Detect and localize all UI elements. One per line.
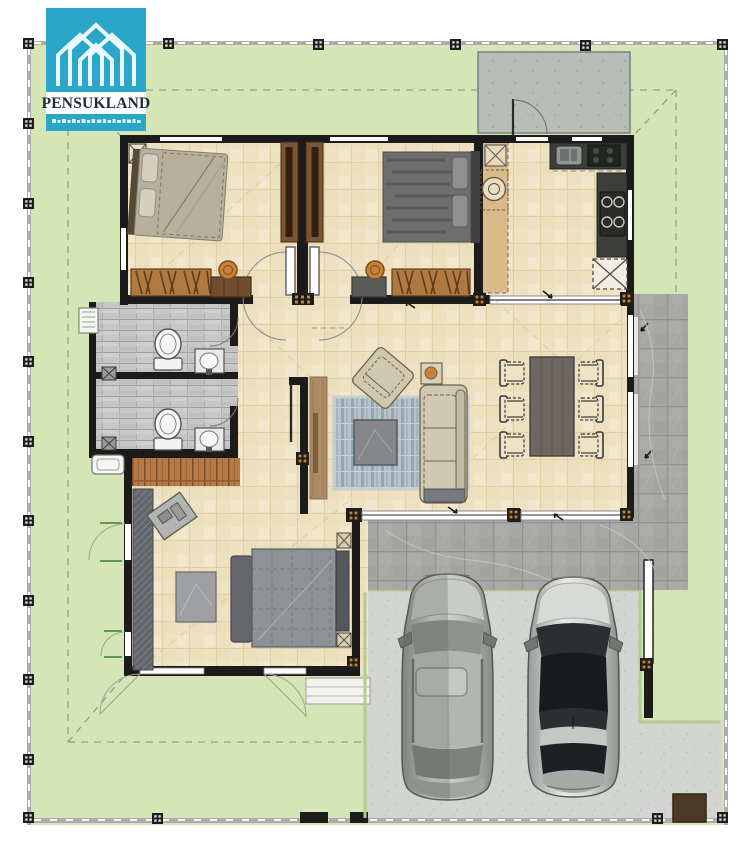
svg-text:PENSUKLAND: PENSUKLAND [42, 95, 151, 112]
